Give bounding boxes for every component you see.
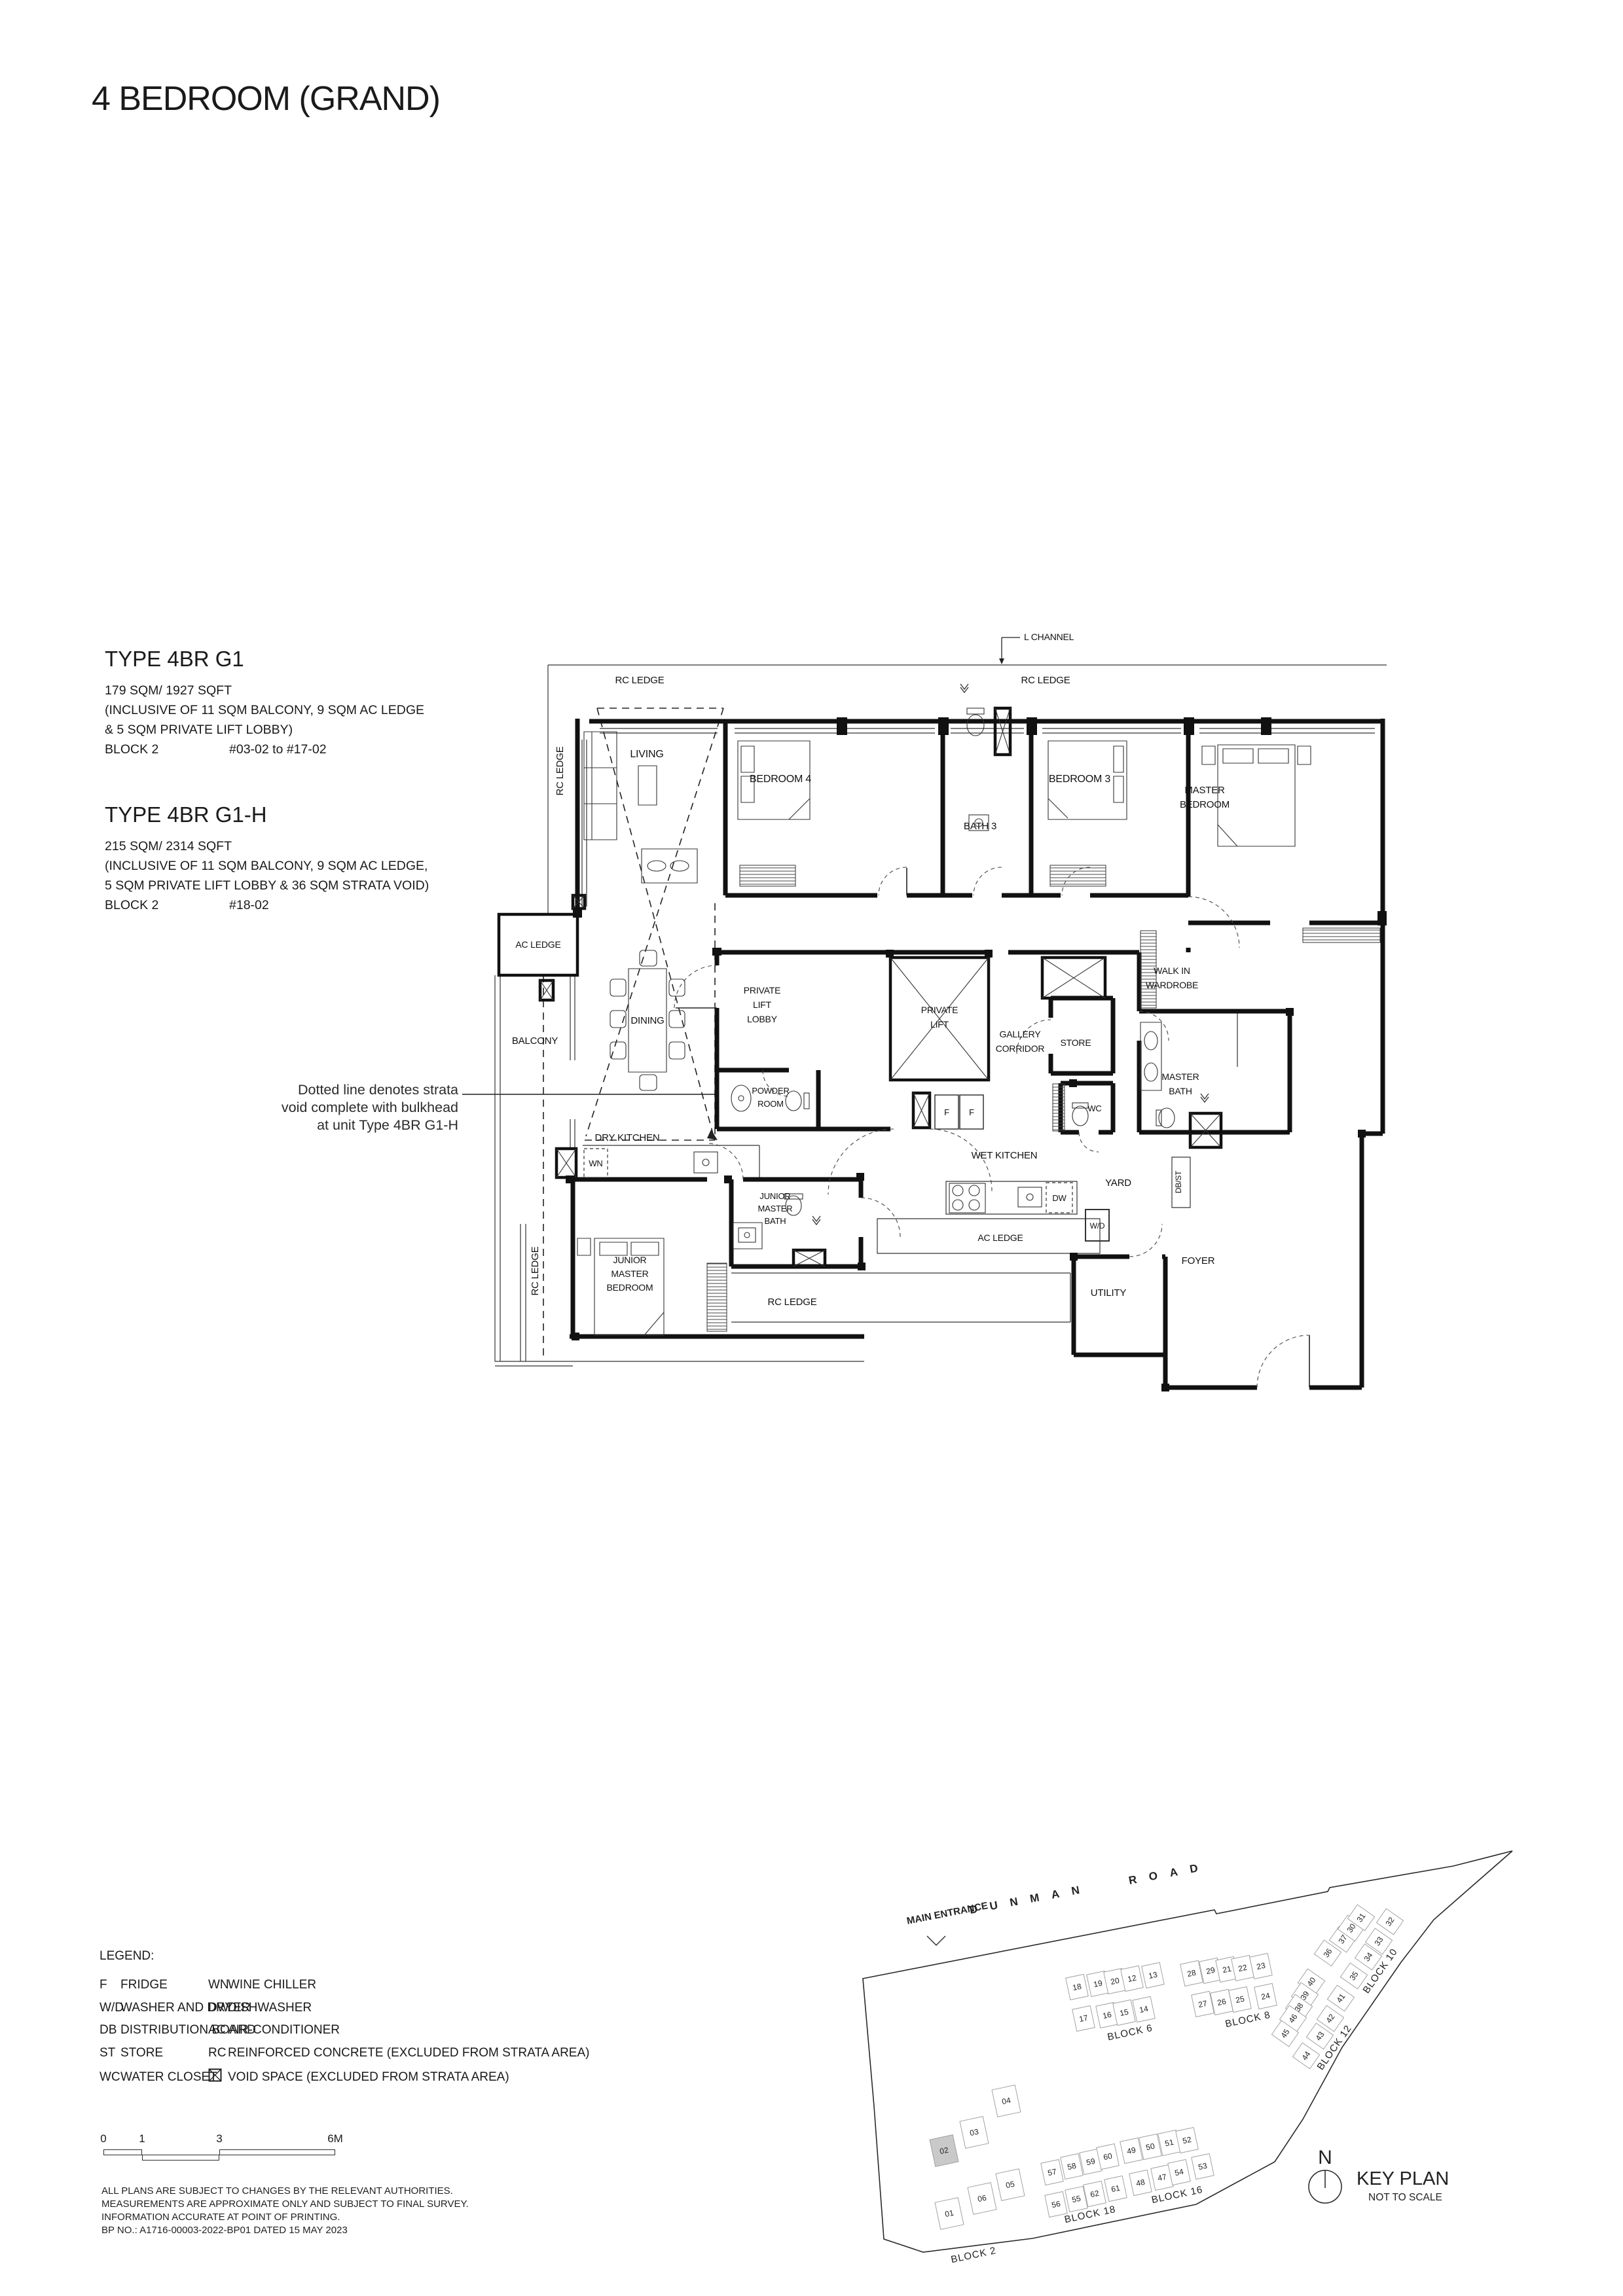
plan-label: FOYER: [1182, 1255, 1215, 1266]
plan-label: DINING: [630, 1015, 664, 1026]
floorplan-page: 4 BEDROOM (GRAND) TYPE 4BR G1 179 SQM/ 1…: [0, 0, 1623, 2296]
legend-desc: REINFORCED CONCRETE (EXCLUDED FROM STRAT…: [228, 2046, 589, 2060]
plan-label: STORE: [1061, 1037, 1091, 1048]
disclaimer-line: BP NO.: A1716-00003-2022-BP01 DATED 15 M…: [101, 2224, 469, 2237]
void-space-icon: [208, 2068, 228, 2086]
floor-plan: L CHANNELRC LEDGERC LEDGERC LEDGELIVINGB…: [484, 609, 1388, 1401]
legend-abbr: WN: [208, 1978, 228, 1992]
plan-label: WC: [1087, 1103, 1101, 1113]
plan-label: BATH: [765, 1216, 786, 1226]
legend-grid: FFRIDGE WNWINE CHILLER W/DWASHER AND DRY…: [100, 1978, 589, 2086]
plan-label: L CHANNEL: [1024, 632, 1074, 642]
wardrobe-hatch-layer: [707, 865, 1380, 1331]
shower-symbol: [960, 684, 968, 692]
legend-desc: WINE CHILLER: [228, 1978, 589, 1992]
scale-label: 6M: [327, 2132, 343, 2145]
legend-desc: FRIDGE: [120, 1978, 208, 1992]
plan-label: WN: [589, 1158, 602, 1168]
shower-symbol: [812, 1216, 820, 1225]
plan-label: MASTER: [1161, 1071, 1199, 1082]
unit-range: #03-02 to #17-02: [229, 742, 327, 757]
legend-desc: DISHWASHER: [228, 2001, 589, 2015]
type-detail: (INCLUSIVE OF 11 SQM BALCONY, 9 SQM AC L…: [105, 700, 471, 720]
plan-label: BEDROOM: [1180, 799, 1230, 810]
plan-label: BALCONY: [512, 1035, 558, 1047]
main-entrance-arrow: [927, 1936, 945, 1945]
type-area: 179 SQM/ 1927 SQFT: [105, 681, 471, 700]
scale-segment: [219, 2149, 335, 2155]
legend-desc: VOID SPACE (EXCLUDED FROM STRATA AREA): [228, 2070, 589, 2085]
scale-label: 1: [139, 2132, 145, 2145]
note-line: Dotted line denotes strata: [254, 1081, 458, 1099]
type-detail: & 5 SQM PRIVATE LIFT LOBBY): [105, 720, 471, 740]
plan-label: UTILITY: [1091, 1287, 1127, 1299]
plan-label: YARD: [1105, 1177, 1131, 1189]
scale-label: 0: [100, 2132, 106, 2145]
compass-north-label: N: [1318, 2147, 1332, 2168]
legend-abbr: WC: [100, 2070, 120, 2085]
note-line: void complete with bulkhead: [254, 1099, 458, 1117]
plan-label: W/D: [1090, 1221, 1105, 1230]
legend-abbr: RC: [208, 2046, 228, 2060]
plan-label: MASTER: [1184, 785, 1225, 796]
legend-desc: STORE: [120, 2046, 208, 2060]
plan-label: RC LEDGE: [615, 675, 664, 686]
plan-label: DB/ST: [1174, 1170, 1183, 1193]
plan-label: WALK IN: [1154, 965, 1190, 976]
legend-abbr: DB: [100, 2023, 120, 2037]
type-detail: 5 SQM PRIVATE LIFT LOBBY & 36 SQM STRATA…: [105, 876, 471, 895]
legend-abbr: F: [100, 1978, 120, 1992]
l-channel-arrow: [999, 658, 1004, 664]
note-line: at unit Type 4BR G1-H: [254, 1117, 458, 1134]
block-number: BLOCK 2: [105, 895, 229, 915]
plan-label: WET KITCHEN: [972, 1150, 1038, 1161]
plan-label: POWDER: [752, 1086, 789, 1096]
plan-label: MASTER: [611, 1268, 648, 1279]
legend-desc: WATER CLOSET: [120, 2070, 208, 2085]
plan-label: DRY KITCHEN: [595, 1132, 660, 1143]
scale-label: 3: [216, 2132, 222, 2145]
plan-label: BEDROOM 4: [750, 774, 812, 785]
plan-label: LIVING: [630, 749, 663, 760]
disclaimer-line: ALL PLANS ARE SUBJECT TO CHANGES BY THE …: [101, 2185, 469, 2198]
legend-abbr: AC: [208, 2023, 228, 2037]
plan-label: F: [969, 1107, 974, 1117]
plan-label: DW: [1052, 1193, 1067, 1203]
plan-label: RC LEDGE: [555, 746, 566, 795]
scale-segment: [103, 2149, 142, 2155]
keyplan-title: KEY PLAN: [1357, 2168, 1449, 2189]
legend-abbr: W/D: [100, 2001, 120, 2015]
plan-label: BEDROOM: [607, 1282, 653, 1293]
strata-void-note: Dotted line denotes strata void complete…: [254, 1081, 458, 1134]
shower-symbol: [1201, 1094, 1209, 1102]
legend: LEGEND: FFRIDGE WNWINE CHILLER W/DWASHER…: [100, 1949, 589, 2086]
plan-label: BATH: [1169, 1086, 1192, 1096]
plan-label: JUNIOR: [613, 1255, 647, 1265]
legend-desc: WASHER AND DRYER: [120, 2001, 208, 2015]
plan-label: AC LEDGE: [515, 939, 560, 950]
disclaimer: ALL PLANS ARE SUBJECT TO CHANGES BY THE …: [101, 2185, 469, 2237]
l-channel-leader: [1002, 637, 1020, 658]
plan-label: GALLERY: [1000, 1029, 1042, 1039]
plan-label: BATH 3: [964, 821, 996, 832]
plan-label: LOBBY: [747, 1014, 778, 1024]
type-name: TYPE 4BR G1: [105, 647, 471, 672]
legend-title: LEGEND:: [100, 1949, 589, 1964]
type-4br-g1-block: TYPE 4BR G1 179 SQM/ 1927 SQFT (INCLUSIV…: [105, 647, 471, 759]
type-detail: (INCLUSIVE OF 11 SQM BALCONY, 9 SQM AC L…: [105, 856, 471, 876]
plan-label: BEDROOM 3: [1049, 774, 1111, 785]
disclaimer-line: MEASUREMENTS ARE APPROXIMATE ONLY AND SU…: [101, 2198, 469, 2211]
plan-label: JUNIOR: [759, 1191, 790, 1201]
plan-label: RC LEDGE: [767, 1297, 816, 1308]
key-plan: MAIN ENTRANCE DUNMAN ROAD 18192012131716…: [851, 1844, 1623, 2296]
legend-abbr: DW: [208, 2001, 228, 2015]
plan-label: LIFT: [753, 999, 772, 1010]
column-blocks: [566, 717, 1387, 1391]
block-number: BLOCK 2: [105, 740, 229, 759]
legend-desc: DISTRIBUTION BOARD: [120, 2023, 208, 2037]
plan-label: RC LEDGE: [530, 1246, 541, 1295]
type-units-line: BLOCK 2#18-02: [105, 895, 471, 915]
type-area: 215 SQM/ 2314 SQFT: [105, 836, 471, 856]
plan-label: PRIVATE: [744, 985, 780, 996]
plan-label: AC LEDGE: [977, 1232, 1023, 1243]
keyplan-blocks: 181920121317161514BLOCK 6282921222327262…: [930, 1905, 1404, 2265]
plan-label: F: [944, 1107, 949, 1117]
legend-abbr: ST: [100, 2046, 120, 2060]
compass: N: [1309, 2147, 1341, 2203]
keyplan-block-label: BLOCK 8: [1224, 2009, 1271, 2030]
scale-segment: [142, 2155, 219, 2161]
plan-label: RC LEDGE: [1021, 675, 1070, 686]
road-label: DUNMAN ROAD: [968, 1859, 1211, 1916]
keyplan-subtitle: NOT TO SCALE: [1368, 2192, 1442, 2203]
plan-label: MASTER: [758, 1204, 793, 1213]
legend-desc: AIR-CONDITIONER: [228, 2023, 589, 2037]
type-units-line: BLOCK 2#03-02 to #17-02: [105, 740, 471, 759]
plan-label: CORRIDOR: [996, 1043, 1045, 1054]
type-4br-g1h-block: TYPE 4BR G1-H 215 SQM/ 2314 SQFT (INCLUS…: [105, 802, 471, 915]
plan-label: LIFT: [930, 1019, 949, 1030]
unit-range: #18-02: [229, 898, 269, 912]
walls-layer: [570, 719, 1383, 1388]
plan-label: WARDROBE: [1146, 980, 1198, 990]
plan-label: ROOM: [757, 1099, 784, 1109]
disclaimer-line: INFORMATION ACCURATE AT POINT OF PRINTIN…: [101, 2211, 469, 2224]
page-title: 4 BEDROOM (GRAND): [92, 79, 440, 118]
type-name: TYPE 4BR G1-H: [105, 802, 471, 827]
plan-label: PRIVATE: [921, 1005, 958, 1015]
